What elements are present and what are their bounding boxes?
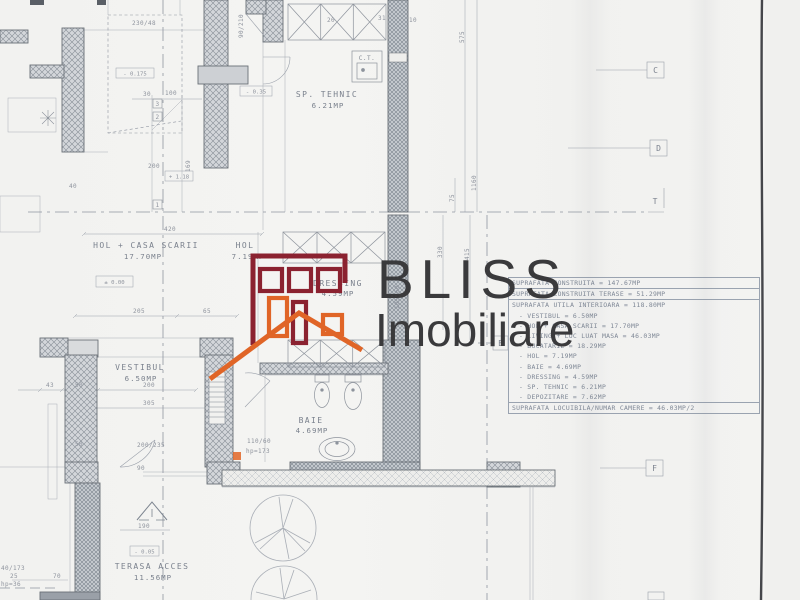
brand-subname: Imobiliare [375,303,574,357]
stair-step-3: 3 [155,101,159,108]
dim-30: 30 [143,91,151,98]
tree-1 [250,495,316,561]
room-sp-tehnic: SP. TEHNIC [296,90,358,99]
stair-step-markers: 3 2 1 [153,99,162,209]
room-vestibul-area: 6.50MP [125,374,158,383]
stair-step-2: 2 [155,114,159,121]
dim-43: 43 [46,382,54,389]
door-size-90-210: 90/210 [238,14,245,38]
dim-169: 169 [185,160,192,172]
table-row: SUPRAFATA LOCUIBILA/NUMAR CAMERE = 46.03… [509,402,759,413]
dim-65: 65 [203,308,211,315]
grid-label-t: T [653,197,658,206]
top-edge-marks [30,0,106,5]
dim-70: 70 [53,573,61,580]
room-hol: HOL [236,241,255,250]
paper-fold-edge [761,0,763,600]
level-minus-035: - 0.35 [246,90,266,96]
table-row: - DRESSING = 4.59MP [509,372,759,382]
grid-label-d: D [656,144,661,153]
room-baie: BAIE [299,416,324,425]
room-baie-area: 4.69MP [296,426,329,435]
sink [319,438,355,461]
door-size-200-235: 200/235 [137,442,165,449]
room-terasa-acces: TERASA ACCES [115,562,190,571]
room-hol-casa-scarii: HOL + CASA SCARII [93,241,199,250]
sill-height-36: hp=36 [1,581,21,588]
table-row: - SP. TEHNIC = 6.21MP [509,382,759,392]
paper-margin [765,0,800,600]
room-sp-tehnic-area: 6.21MP [312,101,345,110]
stair-step-1: 1 [155,202,159,209]
room-terasa-acces-area: 11.56MP [134,573,172,582]
floor-plan-scan: C.T. 3 2 1 420 205 65 43 50 200 305 [0,0,800,600]
dim-305: 305 [143,400,155,407]
terrace-arrow [137,502,167,520]
table-row: - DEPOZITARE = 7.62MP [509,392,759,402]
level-minus-0175: - 0.175 [123,72,147,78]
dim-50b: 50 [75,441,83,448]
dim-190: 190 [138,523,150,530]
dim-200b: 200 [148,163,160,170]
dim-31: 31 [378,15,386,22]
level-zero: ± 0.00 [104,280,124,286]
room-dressing-area: 4.59MP [322,289,355,298]
room-vestibul: VESTIBUL [115,363,165,372]
grid-label-c: C [653,66,658,75]
dim-75: 75 [449,194,456,202]
dim-420: 420 [164,226,176,233]
level-minus-005: - 0.05 [134,550,154,556]
room-hol-area: 7.19MP [232,252,265,261]
room-hol-casa-scarii-area: 17.70MP [124,252,162,261]
dim-575: 575 [459,31,466,43]
lamp-symbol [40,110,56,126]
dim-100: 100 [165,90,177,97]
dim-25: 25 [10,573,18,580]
table-row: - BAIE = 4.69MP [509,362,759,372]
dim-90: 90 [137,465,145,472]
window-size-110-60: 110/60 [247,438,271,445]
dim-20: 20 [327,17,335,24]
radiator [209,372,225,424]
tree-symbols [250,495,317,600]
room-dressing: DRESSING [313,279,363,288]
toilet [345,375,362,410]
dim-10: 10 [409,17,417,24]
tree-2 [251,566,317,600]
window-size-40-173: 40/173 [1,565,25,572]
bidet [315,375,330,408]
brand-name: BLISS [377,247,568,311]
level-plus-118: + 1.18 [169,175,190,181]
dim-1160: 1160 [471,175,478,191]
dim-200a: 200 [143,382,155,389]
dim-40: 40 [69,183,77,190]
window-size-230-48: 230/48 [132,20,156,27]
boiler-label: C.T. [359,55,375,62]
sill-height-173: hp=173 [246,448,270,455]
dim-205: 205 [133,308,145,315]
dim-50a: 50 [75,382,83,389]
grid-label-f: F [652,464,657,473]
